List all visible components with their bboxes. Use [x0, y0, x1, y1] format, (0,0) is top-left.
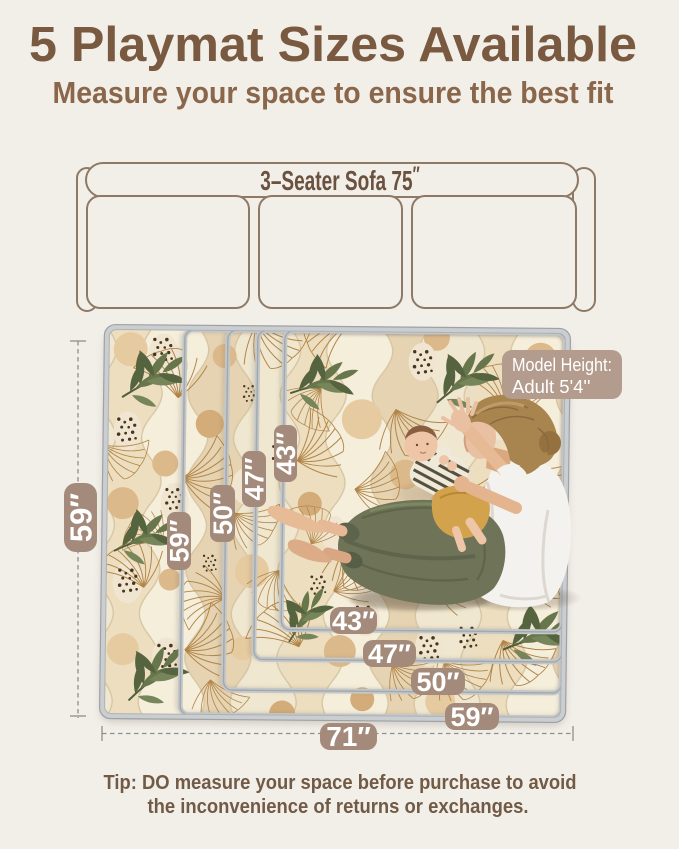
svg-text:47″: 47″	[240, 457, 270, 500]
svg-text:43″: 43″	[332, 606, 375, 636]
svg-text:Adult 5'4'': Adult 5'4''	[512, 376, 590, 397]
svg-text:the inconvenience of returns o: the inconvenience of returns or exchange…	[148, 795, 529, 818]
svg-text:Model Height:: Model Height:	[512, 354, 612, 375]
svg-text:Measure your space to ensure t: Measure your space to ensure the best fi…	[53, 75, 614, 110]
svg-text:Tip: DO measure your space bef: Tip: DO measure your space before purcha…	[104, 771, 577, 794]
svg-text:71″: 71″	[326, 721, 371, 752]
svg-text:50″: 50″	[417, 667, 460, 697]
svg-text:59″: 59″	[451, 702, 494, 732]
svg-text:50″: 50″	[208, 492, 238, 535]
svg-text:5 Playmat Sizes Available: 5 Playmat Sizes Available	[29, 18, 637, 72]
svg-text:59″: 59″	[165, 519, 195, 562]
svg-text:47″: 47″	[368, 639, 411, 669]
svg-text:59″: 59″	[64, 493, 99, 542]
svg-text:43″: 43″	[271, 432, 301, 475]
svg-text:3–Seater Sofa 75″: 3–Seater Sofa 75″	[260, 162, 420, 197]
